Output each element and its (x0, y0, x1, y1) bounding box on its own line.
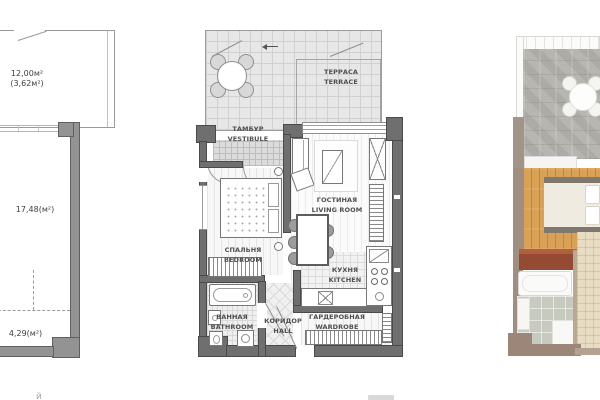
terrace-round-table (217, 61, 247, 91)
kitchen-sink-small (375, 292, 384, 301)
tv-cabinet (369, 138, 386, 180)
wall-bottom-right (314, 345, 403, 357)
render-bed (544, 177, 600, 233)
wall-left-window (199, 185, 207, 230)
washing-machine (237, 330, 254, 347)
render-plan-panel (505, 0, 600, 400)
kitchen-counter-bottom (301, 288, 367, 307)
bed-pillow (268, 209, 279, 233)
render-bed-pillow (585, 185, 600, 204)
toilet-bowl (213, 335, 220, 344)
render-shower-box (552, 320, 575, 345)
room-label-en: TERRACE (302, 78, 380, 88)
render-bed-bench-top (544, 177, 600, 183)
room-label-ru: СПАЛЬНЯ (208, 246, 278, 256)
render-railing-top (516, 36, 600, 50)
entry-arrow-icon (262, 44, 267, 50)
render-wall-bottom-right (575, 348, 600, 355)
room-label-en: LIVING ROOM (297, 206, 377, 216)
render-wall-bottom (527, 344, 581, 356)
render-bathtub-inner (522, 275, 568, 292)
dimension-tick (394, 195, 400, 199)
wall-bedroom-living (283, 134, 291, 233)
kitchen-sink (318, 291, 333, 305)
room-label-ru: ГОСТИНАЯ (297, 196, 377, 206)
room-label-vestibule: ТАМБУР VESTIBULE (213, 125, 283, 145)
room-label-wardrobe: ГАРДЕРОБНАЯ WARDROBE (298, 313, 376, 333)
room-label-terrace: ТЕРРАСА TERRACE (302, 68, 380, 88)
room-label-ru: КУХНЯ (311, 266, 379, 276)
wall-left-window-line (202, 186, 203, 229)
cut-off-caption-left: й (36, 392, 42, 400)
room-label-ru: ГАРДЕРОБНАЯ (298, 313, 376, 323)
render-wall-left-upper (513, 117, 524, 172)
toilet (209, 331, 223, 346)
render-terrace-table (569, 83, 597, 111)
living-room-window-line (303, 129, 389, 130)
wall-right (392, 117, 403, 357)
living-room-window (302, 122, 390, 134)
wardrobe-cabinet-right (382, 313, 392, 343)
room-label-en: KITCHEN (311, 276, 379, 286)
room-label-kitchen: КУХНЯ KITCHEN (311, 266, 379, 286)
bed-pillow (268, 183, 279, 207)
fridge (369, 249, 389, 263)
room-label-en: BEDROOM (208, 256, 278, 266)
room-label-bedroom: СПАЛЬНЯ BEDROOM (208, 246, 278, 266)
floor-plan-sheet: 12,00м² (3,62м²) 17,48(м²) 4,29(м²) (0, 0, 600, 400)
room-label-en: WARDROBE (298, 323, 376, 333)
bed-mattress (225, 185, 265, 232)
washer-drum (241, 334, 250, 343)
render-dresser (519, 249, 577, 270)
wall-vestibule-bedroom (199, 161, 243, 168)
stove-burner (381, 278, 388, 285)
cut-off-caption-center (368, 395, 394, 400)
detailed-plan-panel: ТЕРРАСА TERRACE ТАМБУР VESTIBULE ГОСТИНА… (0, 0, 410, 400)
room-label-living: ГОСТИНАЯ LIVING ROOM (297, 196, 377, 216)
render-hall-floor (577, 232, 600, 352)
stove-burner (381, 268, 388, 275)
living-room-window-line (303, 125, 389, 126)
dimension-tick (394, 268, 400, 272)
render-bathtub (518, 271, 572, 296)
wall-top-right-block (386, 117, 403, 141)
bed (220, 178, 282, 238)
room-label-en: VESTIBULE (213, 135, 283, 145)
entry-arrow-line (266, 46, 278, 47)
nightstand-lamp-icon (274, 167, 283, 176)
coffee-table (322, 150, 343, 184)
room-label-ru: ТЕРРАСА (302, 68, 380, 78)
render-bed-pillow (585, 206, 600, 225)
dining-table (296, 214, 329, 266)
render-dresser-top (519, 249, 577, 254)
render-wall-divider (573, 250, 577, 345)
bathtub (209, 284, 256, 306)
room-label-ru: ТАМБУР (213, 125, 283, 135)
bathtub-drain (243, 293, 248, 298)
render-vanity (517, 298, 530, 330)
